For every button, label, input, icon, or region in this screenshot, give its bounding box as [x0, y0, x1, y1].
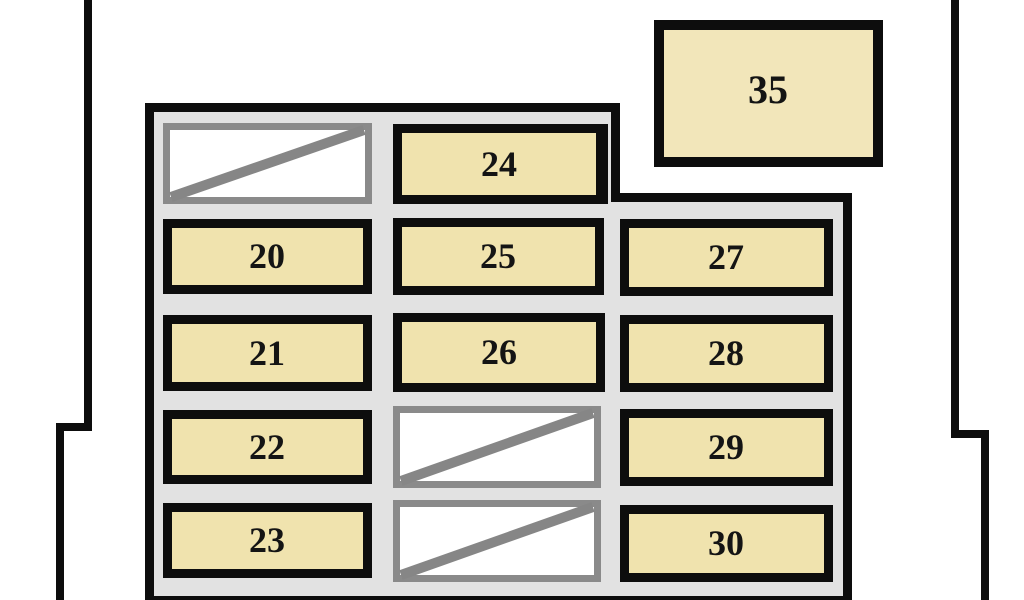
svg-text:35: 35 — [748, 67, 788, 112]
svg-text:28: 28 — [708, 333, 744, 373]
svg-text:24: 24 — [481, 144, 517, 184]
svg-text:21: 21 — [249, 333, 285, 373]
svg-text:20: 20 — [249, 236, 285, 276]
svg-text:30: 30 — [708, 523, 744, 563]
svg-text:22: 22 — [249, 427, 285, 467]
svg-text:23: 23 — [249, 520, 285, 560]
svg-text:27: 27 — [708, 237, 744, 277]
svg-text:26: 26 — [481, 332, 517, 372]
svg-text:29: 29 — [708, 427, 744, 467]
svg-text:25: 25 — [480, 236, 516, 276]
